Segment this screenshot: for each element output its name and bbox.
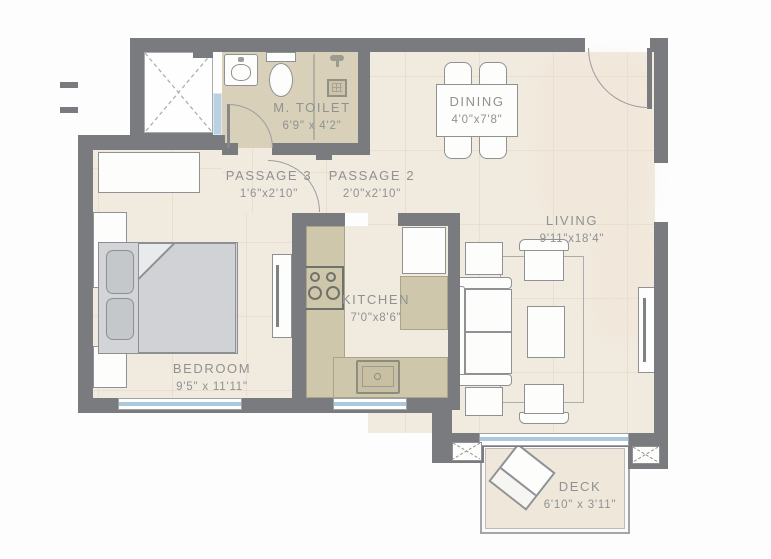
kitchen-counter-right	[400, 276, 448, 330]
wall-shaft-notch	[193, 48, 213, 58]
shower-drain-icon	[327, 79, 347, 97]
fridge-symbol	[402, 227, 446, 274]
wall-door-hinge-stub	[316, 152, 332, 160]
burner-icon	[308, 286, 322, 300]
sofa-arm	[453, 374, 512, 386]
planter-box	[452, 442, 482, 461]
planter-x-icon	[633, 447, 658, 462]
armchair-seat	[524, 250, 564, 281]
dining-chair	[479, 135, 507, 159]
burner-icon	[326, 286, 340, 300]
shaft-window	[213, 93, 222, 135]
tv-unit-bedroom	[272, 254, 292, 338]
wc-bowl-symbol	[269, 63, 293, 97]
burner-icon	[326, 272, 336, 282]
armchair-seat	[524, 384, 564, 414]
shaft-x-icon	[145, 53, 212, 132]
shower-partition	[313, 54, 315, 140]
faucet-icon	[238, 57, 244, 62]
side-table-symbol	[465, 387, 503, 416]
sofa-cushion	[465, 332, 512, 374]
wall-shaft-left	[130, 38, 144, 148]
wall-toilet-right	[358, 52, 370, 155]
wall-stub-exterior	[60, 82, 78, 88]
drain-grid	[332, 83, 342, 92]
shaft-box	[144, 52, 213, 133]
floor-plan: M. TOILET 6'9" x 4'2" PASSAGE 3 1'6"x2'1…	[0, 0, 771, 559]
wall-kitchen-top-right	[398, 213, 448, 226]
wall-kitchen-left	[292, 213, 306, 410]
sofa-cushion	[465, 289, 512, 332]
pillow-icon	[106, 298, 134, 340]
coffee-table-symbol	[527, 306, 565, 358]
wall-deck-step	[432, 407, 452, 463]
planter-x-icon	[453, 443, 480, 459]
wall-stub-exterior	[60, 107, 78, 113]
wall-right-lower	[654, 222, 668, 433]
window-glass	[334, 402, 406, 406]
wall-kitchen-right	[448, 213, 460, 410]
dining-chair	[444, 135, 472, 159]
stove-symbol	[304, 266, 344, 310]
kitchen-window	[333, 398, 407, 410]
wall-right-upper	[654, 38, 668, 163]
wall-shaft-bottom	[130, 133, 222, 148]
basin-bowl	[231, 64, 251, 81]
side-table-symbol	[465, 242, 503, 275]
sink-symbol	[356, 360, 400, 394]
sink-drain-icon	[374, 373, 381, 380]
planter-box	[632, 446, 660, 464]
bedroom-window	[118, 398, 242, 410]
dining-chair	[444, 62, 472, 86]
dining-table-symbol	[436, 84, 518, 137]
burner-icon	[310, 272, 320, 282]
wall-left	[78, 135, 93, 413]
washbasin-symbol	[224, 54, 258, 86]
pillow-icon	[106, 250, 134, 294]
wardrobe-symbol	[98, 152, 200, 193]
deck-sliding-window	[479, 433, 629, 446]
window-glass	[119, 402, 241, 406]
tv-screen	[643, 298, 646, 362]
shower-head-stem	[336, 61, 339, 67]
tv-screen	[276, 265, 279, 327]
wc-tank	[266, 52, 296, 62]
window-glass	[480, 437, 628, 441]
dining-chair	[479, 62, 507, 86]
